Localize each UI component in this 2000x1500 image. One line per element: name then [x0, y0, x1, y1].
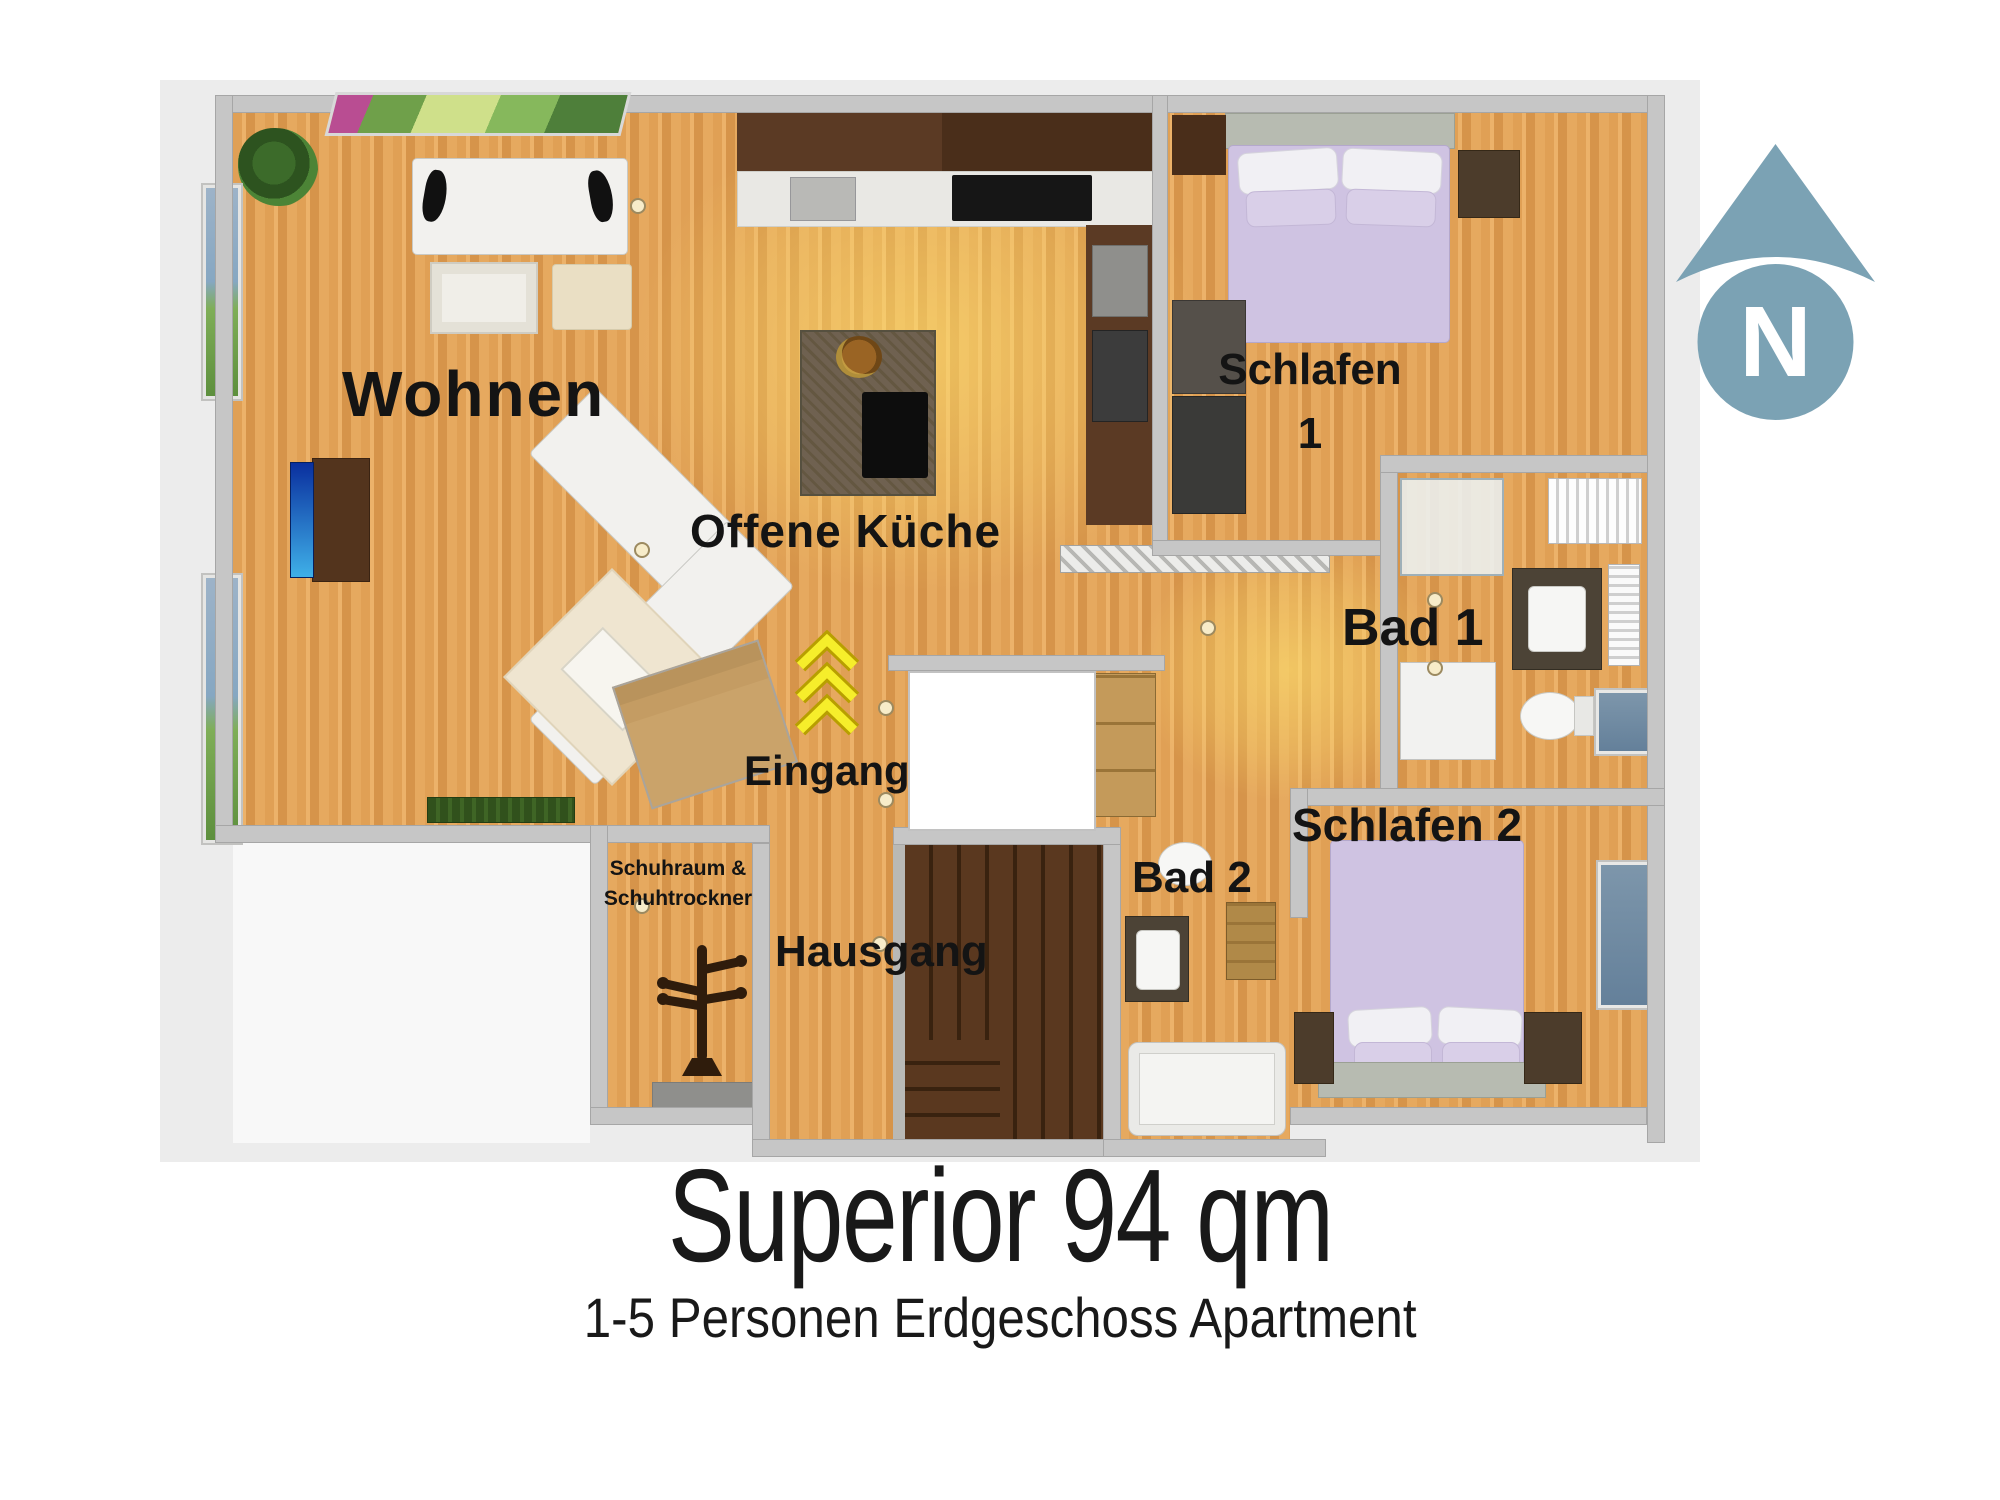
bed1-pillow-3 [1245, 188, 1336, 227]
ceiling-light [878, 792, 894, 808]
compass-letter: N [1739, 286, 1811, 398]
ceiling-light [1200, 620, 1216, 636]
kitchen-sink [790, 177, 856, 221]
up-chevrons-icon [790, 630, 864, 740]
wall-schlafen1-bottom [1152, 540, 1398, 556]
wall-left [215, 95, 233, 843]
bad1-sink [1528, 586, 1586, 652]
bad2-bathtub [1128, 1042, 1286, 1136]
plan-title-text: Superior 94 qm [668, 1140, 1333, 1291]
stair-railing [893, 845, 905, 1139]
staircase-turn [905, 1040, 1000, 1139]
wall-picture [325, 92, 632, 136]
tv-stand [312, 458, 370, 582]
wall-bad1-top [1380, 455, 1665, 473]
label-schlafen-1: Schlafen 1 [1200, 348, 1420, 456]
ceiling-light [1427, 660, 1443, 676]
wall-bad2-left [1103, 827, 1121, 1157]
bed2-nightstand-right [1524, 1012, 1582, 1084]
bad1-window [1596, 690, 1652, 754]
label-schuhraum-line2: Schuhtrockner [596, 884, 760, 914]
outside-area-bottom-left [233, 843, 590, 1143]
kitchen-appliance-bottom [1092, 330, 1148, 422]
kitchen-appliance-top [1092, 245, 1148, 317]
kitchen-oven [952, 175, 1092, 221]
bad2-bench [1226, 902, 1276, 980]
wall-living-bottom [215, 825, 770, 843]
label-schlafen-2: Schlafen 2 [1292, 802, 1522, 848]
ottoman [552, 264, 632, 330]
bed1-pillow-2 [1341, 147, 1443, 194]
plan-subtitle: 1-5 Personen Erdgeschoss Apartment [0, 1285, 2000, 1350]
wall-kitchen-schlafen1 [1152, 95, 1168, 556]
schlafen2-window [1598, 862, 1650, 1008]
plan-subtitle-text: 1-5 Personen Erdgeschoss Apartment [584, 1285, 1417, 1350]
island-cooktop [862, 392, 928, 478]
bad1-shower [1400, 478, 1504, 576]
label-hausgang: Hausgang [775, 930, 988, 974]
schlafen1-dresser [1172, 115, 1226, 175]
ceiling-light [878, 700, 894, 716]
plan-title: Superior 94 qm [0, 1140, 2000, 1291]
floor-plan-page: Wohnen Offene Küche Schlafen 1 Bad 1 Sch… [0, 0, 2000, 1500]
label-wohnen: Wohnen [342, 362, 605, 426]
label-schuhraum: Schuhraum & Schuhtrockner [596, 854, 760, 915]
north-arrow-icon: N [1668, 136, 1883, 436]
entrance-door-opening [908, 671, 1096, 831]
side-table [430, 262, 538, 334]
label-bad-2: Bad 2 [1132, 856, 1252, 900]
bad1-radiator [1608, 564, 1640, 666]
bad1-toilet-tank [1574, 696, 1594, 736]
label-schlafen-1-line1: Schlafen [1200, 348, 1420, 392]
bed1-headboard-platform [1225, 113, 1455, 149]
label-schlafen-1-line2: 1 [1200, 412, 1420, 456]
bed1-pillow-4 [1345, 188, 1436, 227]
bad2-sink [1136, 930, 1180, 990]
label-schuhraum-line1: Schuhraum & [596, 854, 760, 884]
wall-right-outer [1647, 95, 1665, 1143]
wall-schuhraum-bottom [590, 1107, 770, 1125]
bed2-foot-platform [1318, 1062, 1546, 1098]
bad1-towel-curtain [1548, 478, 1642, 544]
ceiling-light [634, 542, 650, 558]
bad1-toilet [1520, 692, 1580, 740]
wall-kitchen-corridor [888, 655, 1165, 671]
label-eingang: Eingang [744, 750, 910, 792]
bad1-shower-tray [1400, 662, 1496, 760]
corridor-wardrobe [1090, 673, 1156, 817]
door-mat-green [427, 797, 575, 823]
wall-schlafen2-bottom [1290, 1107, 1647, 1125]
bed1-nightstand-right [1458, 150, 1520, 218]
coat-rack-icon [650, 942, 755, 1080]
label-bad-1: Bad 1 [1342, 602, 1484, 654]
kitchen-upper-cabinets-right [942, 113, 1152, 171]
ceiling-light [630, 198, 646, 214]
kitchen-upper-cabinets-left [737, 113, 942, 171]
potted-plant [238, 128, 318, 206]
fruit-bowl [836, 336, 882, 378]
tv-screen [290, 462, 314, 578]
label-offene-kueche: Offene Küche [690, 508, 1001, 554]
bed2-nightstand-left [1294, 1012, 1334, 1084]
